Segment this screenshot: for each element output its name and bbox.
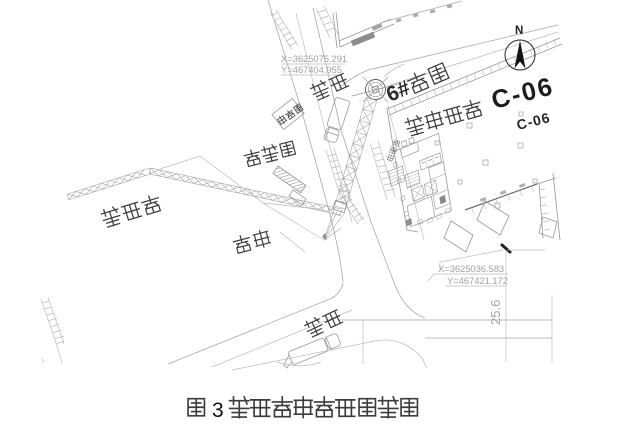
svg-text:X=3625036.583: X=3625036.583 — [438, 264, 504, 275]
svg-text:Y=467404.955: Y=467404.955 — [281, 65, 342, 76]
svg-text:X=3625075.291: X=3625075.291 — [281, 54, 347, 65]
svg-text:C-06: C-06 — [515, 109, 552, 133]
svg-text:25.6: 25.6 — [488, 300, 503, 325]
svg-text:Y=467421.172: Y=467421.172 — [447, 276, 508, 287]
svg-text:N: N — [515, 25, 523, 37]
svg-text:3: 3 — [212, 399, 224, 422]
